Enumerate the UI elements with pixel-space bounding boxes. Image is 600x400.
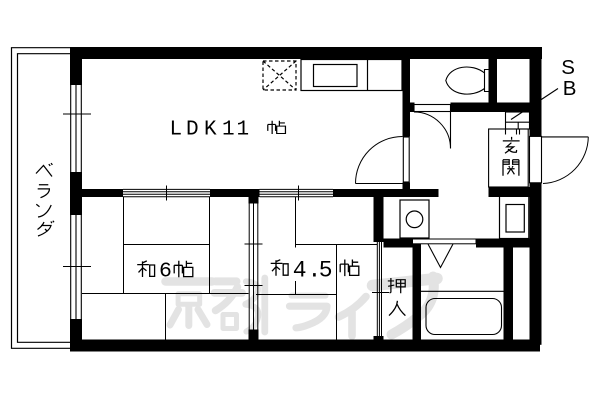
svg-text:5: 5 [319,257,333,283]
svg-text:K: K [204,119,217,142]
svg-text:1: 1 [222,119,235,142]
svg-text:L: L [170,119,183,142]
svg-text:6: 6 [159,260,172,284]
svg-text:S: S [561,56,575,79]
svg-text:D: D [186,119,199,142]
svg-text:4: 4 [293,257,307,283]
svg-text:1: 1 [237,119,250,142]
svg-text:B: B [563,77,577,100]
